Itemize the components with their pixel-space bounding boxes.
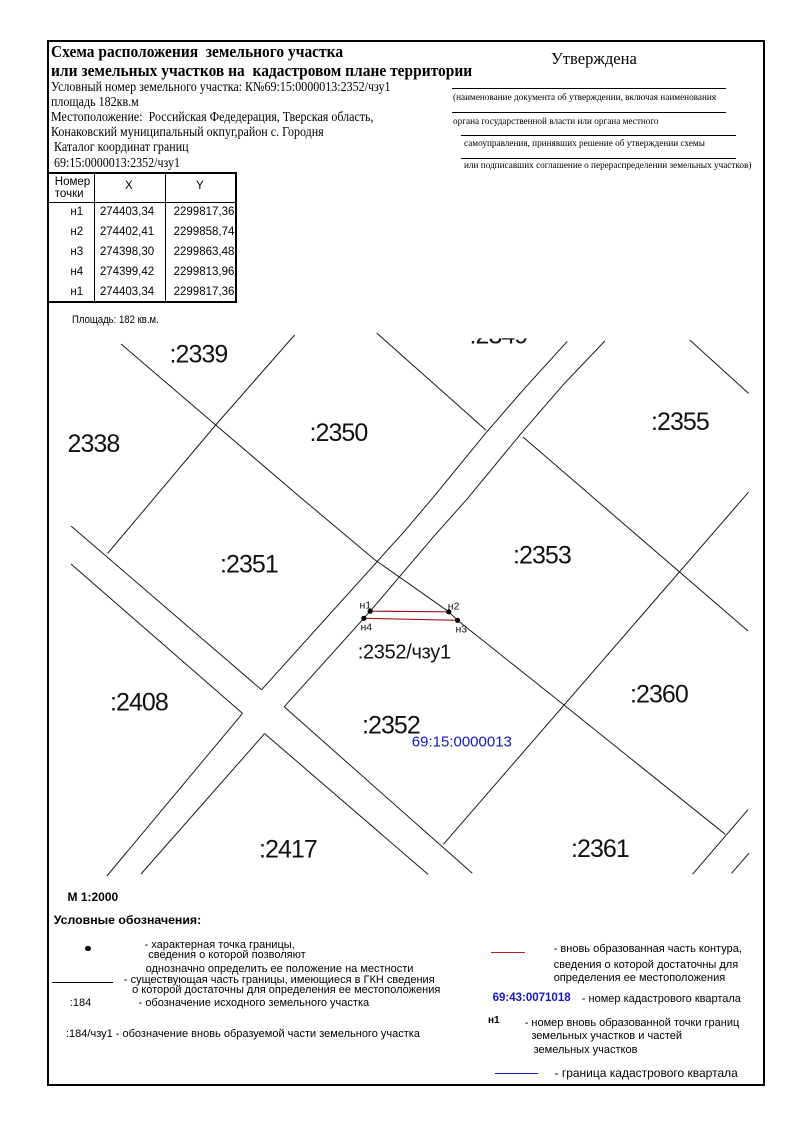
svg-text::2408: :2408 — [110, 689, 168, 717]
svg-text::2339: :2339 — [170, 340, 228, 368]
svg-text:н4: н4 — [361, 621, 373, 633]
svg-text::2352/чзу1: :2352/чзу1 — [358, 642, 451, 664]
svg-text::2361: :2361 — [571, 835, 629, 863]
svg-text:н3: н3 — [456, 623, 468, 635]
svg-text::2417: :2417 — [259, 836, 317, 864]
svg-text:н1: н1 — [360, 600, 372, 612]
svg-text:2338: 2338 — [68, 430, 120, 458]
svg-text::2355: :2355 — [651, 408, 709, 436]
svg-text:69:15:0000013: 69:15:0000013 — [412, 733, 512, 750]
svg-text::2353: :2353 — [513, 542, 571, 570]
svg-text::2360: :2360 — [630, 681, 688, 709]
svg-text:н2: н2 — [448, 601, 460, 613]
svg-text::2351: :2351 — [220, 551, 278, 579]
svg-text::2350: :2350 — [310, 419, 368, 447]
